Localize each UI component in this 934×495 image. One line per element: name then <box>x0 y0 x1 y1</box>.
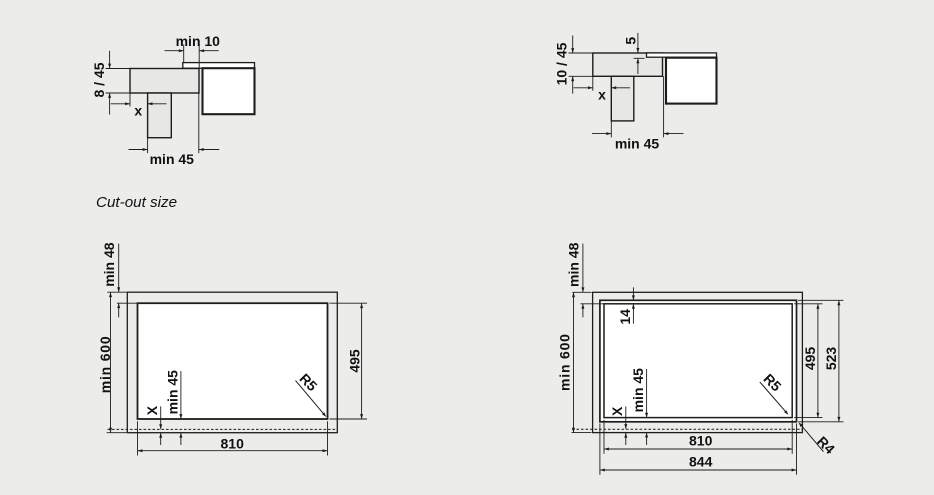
svg-text:min 45: min 45 <box>630 368 646 413</box>
svg-text:10 / 45: 10 / 45 <box>554 42 570 85</box>
svg-text:810: 810 <box>221 435 245 451</box>
svg-text:523: 523 <box>823 347 839 371</box>
svg-text:495: 495 <box>802 347 818 371</box>
svg-text:Cut-out size: Cut-out size <box>96 194 177 211</box>
svg-text:min 600: min 600 <box>557 333 573 391</box>
svg-text:495: 495 <box>346 349 362 373</box>
svg-text:min 45: min 45 <box>615 136 660 152</box>
svg-text:810: 810 <box>689 433 713 449</box>
svg-text:14: 14 <box>617 309 633 325</box>
svg-text:5: 5 <box>623 37 639 45</box>
svg-text:min 45: min 45 <box>150 151 195 167</box>
svg-text:x: x <box>598 87 606 103</box>
svg-text:X: X <box>144 405 160 415</box>
svg-text:min 10: min 10 <box>176 33 221 49</box>
svg-text:min 600: min 600 <box>97 336 113 394</box>
svg-text:min 48: min 48 <box>565 242 581 287</box>
svg-text:X: X <box>609 406 625 416</box>
svg-text:min 48: min 48 <box>101 242 117 287</box>
svg-text:844: 844 <box>689 453 713 469</box>
svg-text:min 45: min 45 <box>165 370 181 415</box>
svg-text:8 / 45: 8 / 45 <box>91 62 107 97</box>
svg-text:x: x <box>134 102 142 118</box>
